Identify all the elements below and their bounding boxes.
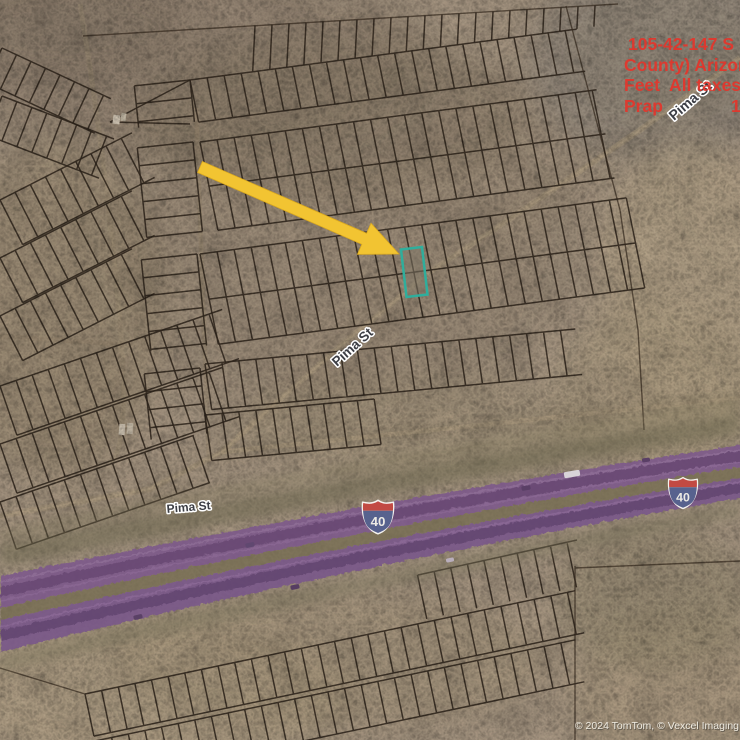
svg-text:105-42-147 S: 105-42-147 S <box>628 34 734 54</box>
svg-text:Feet All taxes: Feet All taxes <box>624 75 740 95</box>
svg-text:© 2024 TomTom, © Vexcel Imagin: © 2024 TomTom, © Vexcel Imaging <box>575 720 739 732</box>
svg-text:40: 40 <box>676 490 690 504</box>
svg-text:1: 1 <box>731 96 740 116</box>
svg-text:County) Arizona: County) Arizona <box>624 55 740 75</box>
svg-text:Prap: Prap <box>624 96 663 116</box>
svg-text:40: 40 <box>371 514 386 529</box>
